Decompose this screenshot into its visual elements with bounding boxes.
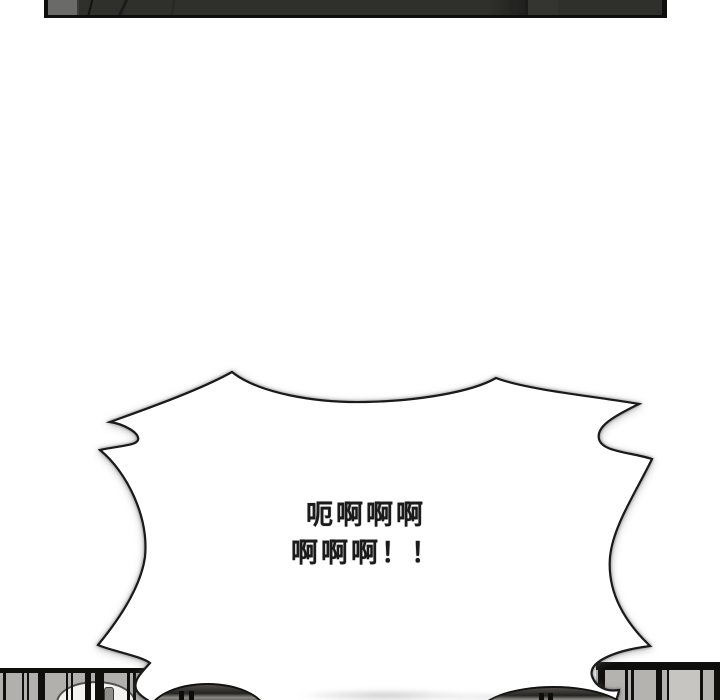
scream-text-line-1: 呃啊啊啊 bbox=[250, 497, 482, 535]
dome-bar bbox=[179, 691, 184, 700]
scream-text: 呃啊啊啊 啊啊啊！！ bbox=[250, 497, 482, 573]
scream-text-line-2: 啊啊啊！！ bbox=[250, 535, 482, 573]
scream-bubble bbox=[0, 0, 720, 700]
comic-page: 呃啊啊啊 啊啊啊！！ bbox=[0, 0, 720, 700]
soft-shadow bbox=[430, 692, 550, 700]
dome-bar bbox=[189, 691, 194, 700]
